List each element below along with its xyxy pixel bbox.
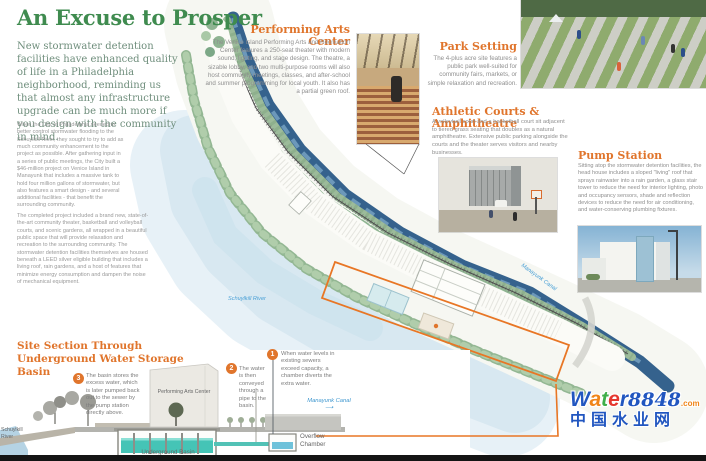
watermark-letter: e [608,388,620,411]
park-setting-text: The 4-plus acre site features a public p… [422,55,517,88]
tent-shape [549,14,563,22]
park-setting-title: Park Setting [427,41,517,53]
person-figure [617,62,621,71]
step-text-2: The water is then conveyed through a pip… [239,366,270,410]
overflow-chamber [269,434,296,451]
canal-label-text: Manayunk Canal [307,398,351,404]
athletic-courts-text: A volleyball court and a basketball cour… [432,119,570,157]
watermark-chinese: 中国水业网 [570,410,706,429]
conveyance-pipe [214,442,272,446]
section-overflow-label: Overflow Chamber [300,433,338,449]
bottom-border-bar [0,455,706,461]
watermark-letter: W [570,388,589,411]
step-badge-1: 1 [267,349,278,360]
body-paragraph-1: When the City of Philadelphia needed to … [17,122,125,210]
pump-station-title: Pump Station [578,150,688,162]
water8848-watermark: Water8848.com 中国水业网 [570,389,706,429]
step-text-3: The basin stores the excess water, which… [86,373,142,417]
plaza-steps [95,423,150,427]
light-pole-arm [668,230,678,232]
section-pac-label: Performing Arts Center [152,389,216,396]
amphitheatre-photo [521,0,706,88]
pump-station-text: Sitting atop the stormwater detention fa… [578,163,704,215]
watermark-number: 8848 [628,389,681,411]
step-text-1: When water levels in existing sewers exc… [281,351,335,388]
ground-texture [439,210,557,232]
watermark-dotcom: .com [681,399,700,408]
map-river-label: Schuylkill River [228,296,267,302]
poster-page: Schuylkill River Manayunk Canal An Excus… [0,0,706,461]
building-shape [600,242,670,280]
basketball-hoop-icon [531,190,542,199]
light-pole [676,230,678,280]
hoop-pole [535,197,537,214]
pump-station-photo [578,226,701,292]
watermark-line1: Water8848.com [570,389,706,410]
person-figure [641,36,645,45]
seat-rows-texture [357,86,419,144]
step-badge-2: 2 [226,363,237,374]
person-figure [513,212,517,221]
person-figure [577,30,581,39]
photo-leader-lines [366,144,419,174]
watermark-letter: r [620,388,628,411]
arrow-right-icon: ⟶ [325,405,333,411]
performing-arts-text: The Venice Island Performing Arts and Re… [202,39,350,96]
theater-interior-photo [357,34,419,144]
athletic-courts-photo [439,158,557,232]
person-figure [391,76,402,102]
person-figure [681,48,685,57]
step-badge-3: 3 [73,373,84,384]
ceiling-texture [357,34,419,68]
person-figure [671,44,675,53]
body-paragraph-2: The completed project included a brand n… [17,213,149,286]
tent-shape [495,200,507,207]
glass-tower-shape [636,236,654,282]
watermark-letter: a [589,388,601,411]
section-river-label: Schuylkill River [1,427,27,440]
section-canal-label: Manayunk Canal ⟶ [303,398,355,412]
shrub-shape [586,274,600,280]
person-figure [489,210,493,218]
